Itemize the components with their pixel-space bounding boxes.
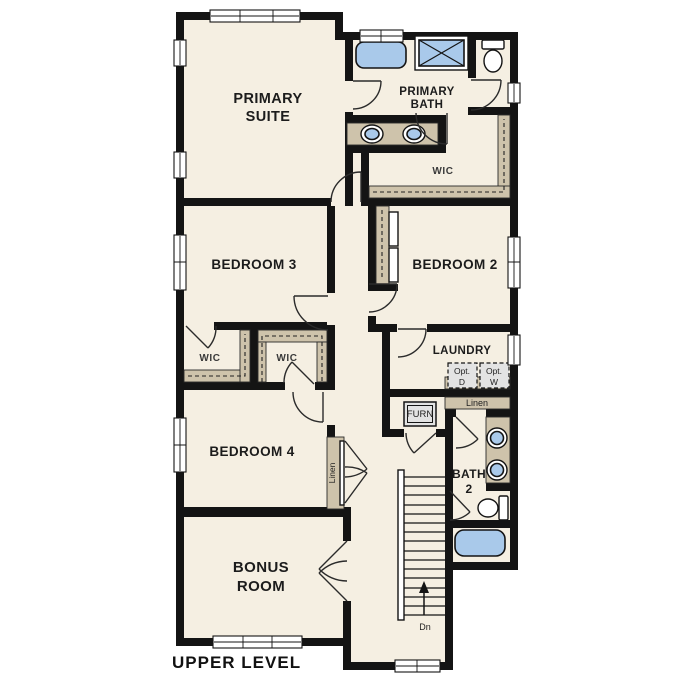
window-icon [360, 30, 403, 42]
window-icon [174, 40, 186, 66]
bathtub-icon [356, 42, 406, 68]
room-label-bath2: BATH [452, 467, 486, 481]
room-label-primary-wic: WIC [432, 166, 453, 177]
svg-text:SUITE: SUITE [246, 109, 291, 125]
window-icon [508, 83, 520, 103]
room-label-bedroom2: BEDROOM 2 [412, 257, 497, 272]
svg-text:W: W [490, 377, 498, 387]
label-linen-hall: Linen [466, 398, 488, 408]
window-icon [210, 10, 300, 22]
window-icon [174, 235, 186, 290]
sink-icon [491, 464, 504, 477]
room-label-bedroom4: BEDROOM 4 [209, 444, 294, 459]
bath2-vanity [486, 417, 510, 483]
label-linen-bedroom4: Linen [327, 462, 337, 483]
window-icon [395, 660, 440, 672]
floor-plan-page: PRIMARY SUITE PRIMARY BATH WIC BEDROOM 3… [0, 0, 687, 687]
room-label-wic-bedroom3: WIC [199, 353, 220, 364]
window-icon [508, 237, 520, 288]
svg-text:ROOM: ROOM [237, 578, 285, 595]
toilet-icon [482, 40, 504, 72]
room-label-laundry: LAUNDRY [433, 345, 492, 357]
svg-text:BATH: BATH [411, 99, 444, 111]
label-furnace: FURN [407, 409, 434, 420]
label-opt-dryer: Opt. [454, 366, 470, 376]
room-label-bedroom3: BEDROOM 3 [211, 257, 296, 272]
label-opt-washer: Opt. [486, 366, 502, 376]
window-icon [174, 418, 186, 472]
window-icon [213, 636, 302, 648]
window-icon [174, 152, 186, 178]
sink-icon [365, 129, 379, 140]
bathtub-icon [455, 530, 505, 556]
svg-text:D: D [459, 377, 465, 387]
room-label-bonus-room: BONUS [233, 559, 289, 576]
room-label-wic-bedroom4: WIC [276, 353, 297, 364]
window-icon [508, 335, 520, 365]
page-title: UPPER LEVEL [172, 653, 301, 672]
room-label-primary-bath: PRIMARY [399, 86, 454, 98]
svg-text:2: 2 [465, 482, 472, 496]
floor-area [176, 12, 518, 670]
label-stair-direction: Dn [419, 622, 431, 632]
room-label-primary-suite: PRIMARY [233, 91, 302, 107]
shower-icon [415, 36, 468, 70]
sink-icon [407, 129, 421, 140]
sink-icon [491, 432, 504, 445]
floor-plan-drawing: PRIMARY SUITE PRIMARY BATH WIC BEDROOM 3… [0, 0, 687, 687]
